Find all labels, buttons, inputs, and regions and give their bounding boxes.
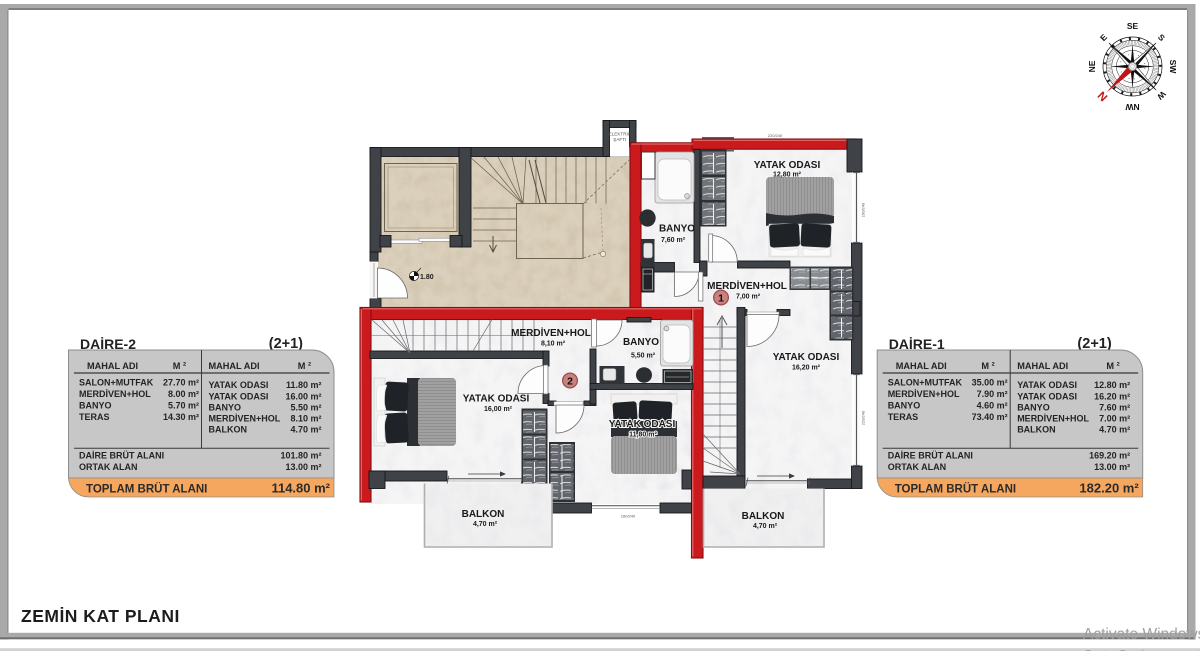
svg-text:MAHAL ADI: MAHAL ADI [87,361,138,371]
svg-text:16.00 m²: 16.00 m² [285,392,321,402]
svg-text:YATAK ODASI: YATAK ODASI [209,392,269,402]
svg-text:7.90 m²: 7.90 m² [977,389,1008,399]
svg-text:M ²: M ² [173,361,186,371]
svg-text:114.80 m²: 114.80 m² [271,481,330,496]
svg-text:MERDİVEN+HOL: MERDİVEN+HOL [1017,414,1089,424]
svg-text:229/240: 229/240 [861,410,866,425]
svg-text:BANYO: BANYO [659,224,695,235]
svg-text:SW: SW [1168,60,1178,75]
svg-text:M ²: M ² [981,361,994,371]
svg-text:ORTAK ALAN: ORTAK ALAN [888,462,947,472]
svg-text:4.70 m²: 4.70 m² [1099,425,1130,435]
svg-text:M ²: M ² [1106,361,1119,371]
svg-text:4,70 m²: 4,70 m² [753,523,778,530]
svg-text:7.00 m²: 7.00 m² [1099,414,1130,424]
svg-text:NW: NW [1124,102,1139,112]
svg-text:TERAS: TERAS [79,412,110,422]
svg-text:12,80 m²: 12,80 m² [773,172,802,179]
svg-text:YATAK ODASI: YATAK ODASI [209,380,269,390]
svg-text:MERDİVEN+HOL: MERDİVEN+HOL [79,389,151,399]
svg-text:7,00 m²: 7,00 m² [736,294,761,301]
svg-text:169.20 m²: 169.20 m² [1089,451,1130,461]
svg-text:YATAK ODASI: YATAK ODASI [773,352,840,363]
svg-text:35.00 m²: 35.00 m² [972,378,1008,388]
svg-text:16,00 m²: 16,00 m² [484,406,513,413]
svg-text:8.10 m²: 8.10 m² [290,414,321,424]
svg-text:DAİRE BRÜT ALANI: DAİRE BRÜT ALANI [79,451,164,461]
svg-text:YATAK ODASI: YATAK ODASI [609,419,676,430]
svg-text:182.20 m²: 182.20 m² [1079,481,1139,496]
svg-text:TERAS: TERAS [888,412,919,422]
svg-text:8,10 m²: 8,10 m² [541,341,566,348]
svg-text:220/240: 220/240 [768,133,783,138]
svg-text:160/240: 160/240 [621,514,636,519]
svg-text:SALON+MUTFAK: SALON+MUTFAK [79,378,154,388]
svg-text:MERDİVEN+HOL: MERDİVEN+HOL [209,414,281,424]
svg-text:190/249: 190/249 [861,202,866,217]
svg-text:ELEKTRİK: ELEKTRİK [609,131,632,137]
svg-text:TOPLAM BRÜT ALANI: TOPLAM BRÜT ALANI [895,483,1016,496]
svg-text:BANYO: BANYO [1017,403,1050,413]
svg-text:BANYO: BANYO [79,401,112,411]
svg-text:MERDİVEN+HOL: MERDİVEN+HOL [511,326,591,339]
svg-text:16,20 m²: 16,20 m² [792,365,821,372]
svg-text:5,50 m²: 5,50 m² [631,353,656,360]
svg-text:BALKON: BALKON [742,511,785,522]
svg-text:ORTAK ALAN: ORTAK ALAN [79,462,138,472]
svg-text:BALKON: BALKON [462,509,505,520]
svg-text:4.60 m²: 4.60 m² [977,401,1008,411]
svg-text:101.80 m²: 101.80 m² [280,451,321,461]
svg-text:Activate Windows: Activate Windows [1083,626,1200,643]
svg-text:7.60 m²: 7.60 m² [1099,403,1130,413]
svg-text:27.70 m²: 27.70 m² [163,378,199,388]
svg-text:12.80 m²: 12.80 m² [1094,380,1130,390]
svg-text:YATAK ODASI: YATAK ODASI [1017,392,1077,402]
svg-text:BANYO: BANYO [209,403,242,413]
svg-text:2: 2 [567,375,573,387]
svg-text:14.30 m²: 14.30 m² [163,412,199,422]
svg-text:BANYO: BANYO [888,401,921,411]
svg-text:13.00 m²: 13.00 m² [285,462,321,472]
svg-text:5.50 m²: 5.50 m² [290,403,321,413]
svg-text:1: 1 [718,292,724,304]
svg-text:TOPLAM BRÜT ALANI: TOPLAM BRÜT ALANI [86,483,207,496]
svg-text:DAİRE BRÜT ALANI: DAİRE BRÜT ALANI [888,451,973,461]
svg-text:SALON+MUTFAK: SALON+MUTFAK [888,378,963,388]
svg-text:8.00 m²: 8.00 m² [168,389,199,399]
svg-text:13.00 m²: 13.00 m² [1094,462,1130,472]
svg-text:BANYO: BANYO [623,337,659,348]
svg-text:73.40 m²: 73.40 m² [972,412,1008,422]
svg-text:NE: NE [1087,60,1097,72]
svg-text:BALKON: BALKON [209,425,248,435]
svg-text:YATAK ODASI: YATAK ODASI [463,394,530,405]
svg-text:MAHAL ADI: MAHAL ADI [896,361,947,371]
svg-text:Go to Settings to activate Win: Go to Settings to activate Windows. [1083,647,1200,651]
svg-text:1.80: 1.80 [420,274,434,281]
svg-text:4.70 m²: 4.70 m² [290,425,321,435]
svg-text:YATAK ODASI: YATAK ODASI [754,160,821,171]
svg-text:M ²: M ² [298,361,311,371]
svg-text:11,80 m²: 11,80 m² [629,432,657,439]
svg-text:ZEMİN KAT PLANI: ZEMİN KAT PLANI [21,606,180,626]
svg-text:5.70 m²: 5.70 m² [168,401,199,411]
svg-text:4,70 m²: 4,70 m² [473,521,498,528]
svg-text:MERDİVEN+HOL: MERDİVEN+HOL [888,389,960,399]
svg-text:MAHAL ADI: MAHAL ADI [1017,361,1068,371]
svg-text:16.20 m²: 16.20 m² [1094,392,1130,402]
svg-text:11.80 m²: 11.80 m² [286,380,322,390]
svg-text:MAHAL ADI: MAHAL ADI [209,361,260,371]
svg-text:YATAK ODASI: YATAK ODASI [1017,380,1077,390]
svg-text:7,60 m²: 7,60 m² [661,237,686,244]
svg-text:BALKON: BALKON [1017,425,1055,435]
svg-text:SE: SE [1127,21,1139,31]
svg-text:ŞAFTI: ŞAFTI [613,137,626,142]
